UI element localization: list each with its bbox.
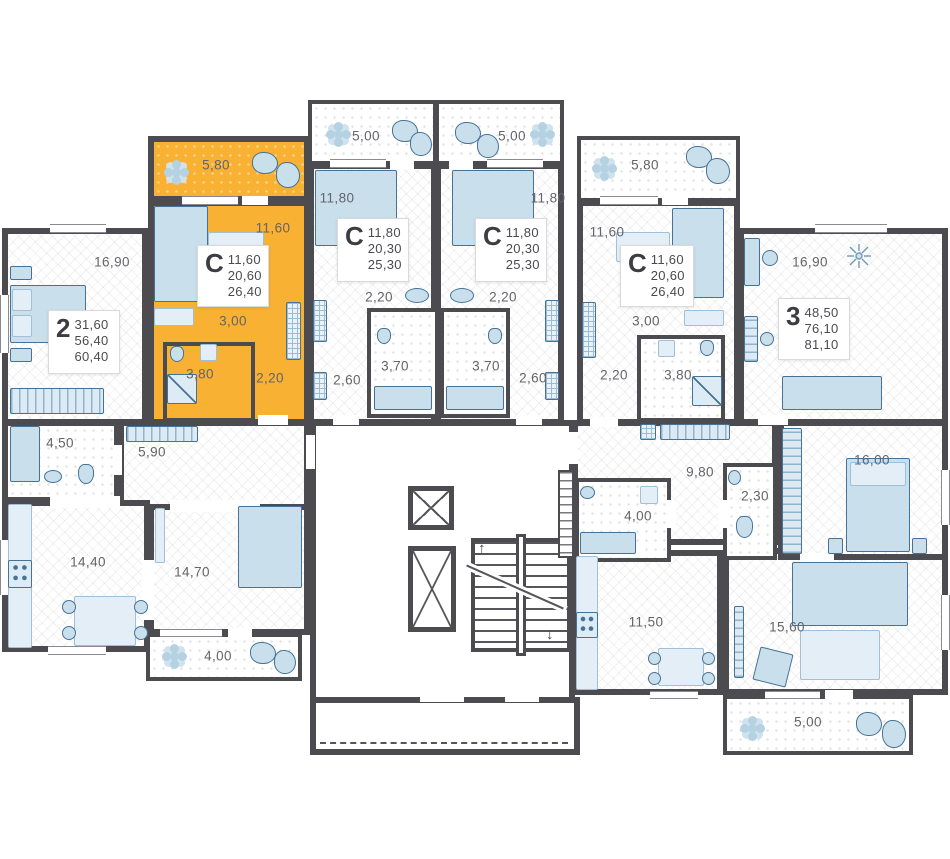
apartment-card-3room[interactable]: 3 48,50 76,10 81,10 bbox=[778, 298, 850, 360]
pillow bbox=[12, 315, 32, 337]
apartment-card-studio-highlighted[interactable]: C 11,60 20,60 26,40 bbox=[197, 245, 269, 307]
apartment-area: 26,40 bbox=[651, 284, 685, 300]
lounge-chair bbox=[477, 134, 499, 158]
window bbox=[0, 295, 9, 353]
lounge-chair bbox=[856, 712, 882, 736]
nightstand bbox=[10, 266, 32, 280]
apartment-area: 25,30 bbox=[506, 257, 540, 273]
room-area-label: 3,80 bbox=[186, 367, 214, 382]
chair bbox=[62, 600, 76, 614]
stove bbox=[8, 560, 32, 588]
room-area-label: 11,80 bbox=[531, 191, 566, 206]
room-area-label: 2,60 bbox=[333, 373, 361, 388]
entry-mat bbox=[313, 372, 327, 400]
apartment-area: 56,40 bbox=[74, 333, 108, 349]
apartment-area: 48,50 bbox=[804, 305, 838, 321]
sink bbox=[405, 288, 429, 303]
apartment-area: 31,60 bbox=[74, 317, 108, 333]
hall-closet bbox=[126, 426, 198, 442]
chair bbox=[134, 626, 148, 640]
stove bbox=[576, 612, 598, 638]
sofa bbox=[792, 562, 908, 626]
plant-icon bbox=[538, 130, 547, 139]
door-opening bbox=[333, 415, 359, 425]
chair bbox=[648, 652, 661, 665]
nightstand bbox=[912, 538, 927, 554]
nightstand bbox=[828, 538, 843, 554]
window bbox=[941, 595, 950, 650]
balcony-door-opening bbox=[825, 690, 853, 699]
window bbox=[941, 470, 950, 525]
staircase-stringer bbox=[516, 534, 526, 656]
window bbox=[600, 196, 658, 205]
room-area-label: 11,60 bbox=[256, 221, 291, 236]
tv-stand bbox=[734, 606, 744, 678]
room-area-label: 3,00 bbox=[219, 314, 247, 329]
room-area-label: 5,80 bbox=[202, 158, 230, 173]
entry-mat bbox=[545, 372, 559, 400]
washing-machine bbox=[640, 486, 658, 504]
dining-table bbox=[74, 596, 136, 646]
plant-icon bbox=[748, 724, 757, 733]
apartment-card-studio-ml[interactable]: C 11,80 20,30 25,30 bbox=[337, 218, 409, 282]
door-opening bbox=[666, 500, 676, 528]
room-area-label: 4,50 bbox=[46, 436, 74, 451]
elevator-icon bbox=[408, 486, 454, 530]
room-area-label: 3,80 bbox=[664, 368, 692, 383]
sink bbox=[450, 288, 474, 303]
window bbox=[330, 159, 386, 168]
chair bbox=[762, 250, 778, 266]
nightstand bbox=[10, 348, 32, 362]
toilet bbox=[488, 328, 502, 344]
window bbox=[160, 629, 222, 637]
kitchenette bbox=[684, 310, 724, 326]
apartment-area: 11,60 bbox=[651, 252, 685, 268]
apartment-area: 11,60 bbox=[228, 252, 262, 268]
mirror bbox=[155, 508, 165, 563]
balcony-door-opening bbox=[242, 196, 268, 205]
chair bbox=[134, 600, 148, 614]
room-area-label: 5,80 bbox=[631, 158, 659, 173]
chair bbox=[62, 626, 76, 640]
room-area-label: 2,60 bbox=[519, 371, 547, 386]
door-opening bbox=[258, 415, 288, 425]
window bbox=[487, 159, 543, 168]
apartment-area: 81,10 bbox=[804, 337, 838, 353]
kitchenette bbox=[154, 308, 194, 326]
chair bbox=[702, 672, 715, 685]
toilet bbox=[78, 464, 94, 484]
toilet bbox=[700, 340, 714, 356]
chair bbox=[648, 672, 661, 685]
room-area-label: 2,20 bbox=[489, 290, 517, 305]
elevator-icon bbox=[408, 546, 456, 632]
wardrobe bbox=[782, 428, 802, 554]
apartment-type: 2 bbox=[56, 317, 70, 340]
rug bbox=[800, 630, 880, 680]
toilet bbox=[736, 516, 753, 538]
hall-wardrobe bbox=[660, 424, 730, 440]
apartment-card-studio-right[interactable]: C 11,60 20,60 26,40 bbox=[620, 245, 694, 307]
dining-table bbox=[658, 648, 704, 686]
apartment-area: 76,10 bbox=[804, 321, 838, 337]
plant-icon bbox=[334, 130, 343, 139]
apartment-area: 20,30 bbox=[368, 241, 402, 257]
door-opening bbox=[420, 692, 464, 702]
room-area-label: 9,80 bbox=[686, 465, 714, 480]
door-opening bbox=[758, 415, 788, 425]
apartment-area: 26,40 bbox=[228, 284, 262, 300]
apartment-type: C bbox=[483, 225, 502, 248]
pillow bbox=[12, 289, 32, 311]
shelf-rack bbox=[286, 302, 301, 360]
apartment-area: 60,40 bbox=[74, 349, 108, 365]
vent-shaft bbox=[558, 470, 574, 558]
room-area-label: 4,00 bbox=[204, 649, 232, 664]
apartment-area: 20,60 bbox=[228, 268, 262, 284]
entrance-vestibule bbox=[310, 697, 580, 755]
apartment-area: 11,80 bbox=[368, 225, 402, 241]
room-area-label: 3,00 bbox=[632, 314, 660, 329]
apartment-area: 11,80 bbox=[506, 225, 540, 241]
door-opening bbox=[566, 432, 578, 464]
lounge-chair bbox=[252, 152, 278, 174]
lounge-chair bbox=[706, 158, 730, 184]
washing-machine bbox=[200, 344, 217, 361]
window bbox=[765, 691, 820, 699]
apartment-type: C bbox=[205, 252, 224, 275]
stairs-down-arrow-icon: ↓ bbox=[546, 626, 554, 643]
room-area-label: 11,60 bbox=[590, 225, 625, 240]
apartment-card-2room[interactable]: 2 31,60 56,40 60,40 bbox=[48, 310, 120, 374]
desk bbox=[744, 238, 760, 286]
door-opening bbox=[505, 692, 539, 702]
door-opening bbox=[590, 417, 618, 427]
apartment-card-studio-mr[interactable]: C 11,80 20,30 25,30 bbox=[475, 218, 547, 282]
plant-icon bbox=[170, 652, 179, 661]
window bbox=[650, 691, 698, 699]
sink bbox=[728, 470, 741, 485]
apartment-type: C bbox=[345, 225, 364, 248]
bathtub bbox=[446, 386, 504, 410]
floor-plan: ↑ ↓ bbox=[0, 0, 950, 859]
window bbox=[182, 196, 238, 205]
chair bbox=[702, 652, 715, 665]
room-area-label: 11,50 bbox=[629, 615, 664, 630]
room-area-label: 2,30 bbox=[741, 489, 769, 504]
shelf-rack bbox=[545, 300, 559, 342]
balcony-door-opening bbox=[390, 159, 414, 169]
balcony-door-opening bbox=[228, 628, 252, 637]
door-opening bbox=[718, 500, 728, 528]
room-area-label: 2,20 bbox=[256, 371, 284, 386]
room-area-label: 14,40 bbox=[70, 555, 106, 570]
sink bbox=[580, 486, 595, 499]
wardrobe bbox=[10, 388, 104, 414]
bathtub bbox=[374, 386, 432, 410]
plant-icon bbox=[600, 164, 609, 173]
room-area-label: 5,00 bbox=[794, 715, 822, 730]
opening bbox=[50, 496, 120, 508]
bathtub bbox=[10, 426, 40, 482]
room-area-label: 5,00 bbox=[352, 129, 380, 144]
balcony-door-opening bbox=[449, 159, 473, 169]
lounge-chair bbox=[250, 642, 276, 664]
sofa bbox=[782, 376, 882, 410]
room-area-label: 16,90 bbox=[94, 255, 130, 270]
room-area-label: 11,80 bbox=[320, 191, 355, 206]
washing-machine bbox=[658, 340, 675, 357]
side-table bbox=[760, 332, 774, 346]
shower bbox=[692, 376, 722, 406]
balcony-door-opening bbox=[662, 196, 688, 205]
entry-mat bbox=[640, 424, 656, 440]
room-area-label: 16,00 bbox=[854, 453, 890, 468]
window bbox=[48, 646, 106, 655]
lounge-chair bbox=[274, 650, 296, 674]
room-area-label: 15,60 bbox=[769, 620, 805, 635]
shelf-rack bbox=[313, 300, 327, 342]
apartment-type: C bbox=[628, 252, 647, 275]
lounge-chair bbox=[410, 132, 432, 156]
plant-icon bbox=[172, 168, 181, 177]
room-area-label: 16,90 bbox=[792, 255, 828, 270]
stairs-up-arrow-icon: ↑ bbox=[478, 540, 486, 557]
door-opening bbox=[114, 445, 122, 475]
room-area-label: 4,00 bbox=[624, 509, 652, 524]
shelf-rack bbox=[582, 302, 596, 358]
room-area-label: 5,90 bbox=[138, 445, 166, 460]
sink bbox=[44, 470, 62, 483]
bookshelf bbox=[744, 316, 758, 362]
bathtub bbox=[580, 532, 636, 554]
room-area-label: 3,70 bbox=[472, 359, 500, 374]
toilet bbox=[377, 328, 391, 344]
apartment-area: 25,30 bbox=[368, 257, 402, 273]
window bbox=[815, 224, 887, 233]
window bbox=[50, 224, 106, 233]
entrance-dashed-line bbox=[320, 742, 568, 744]
room-area-label: 2,20 bbox=[600, 368, 628, 383]
lounge-chair bbox=[276, 162, 300, 188]
room-area-label: 3,70 bbox=[381, 359, 409, 374]
room-area-label: 2,20 bbox=[365, 290, 393, 305]
lounge-chair bbox=[882, 720, 906, 748]
room-area-label: 14,70 bbox=[174, 565, 210, 580]
door-opening bbox=[306, 435, 315, 469]
room-area-label: 5,00 bbox=[498, 129, 526, 144]
apartment-area: 20,60 bbox=[651, 268, 685, 284]
apartment-area: 20,30 bbox=[506, 241, 540, 257]
apartment-type: 3 bbox=[786, 305, 800, 328]
chandelier-icon bbox=[845, 242, 873, 270]
sofa bbox=[238, 506, 302, 588]
toilet bbox=[170, 346, 184, 362]
door-opening bbox=[516, 415, 542, 425]
